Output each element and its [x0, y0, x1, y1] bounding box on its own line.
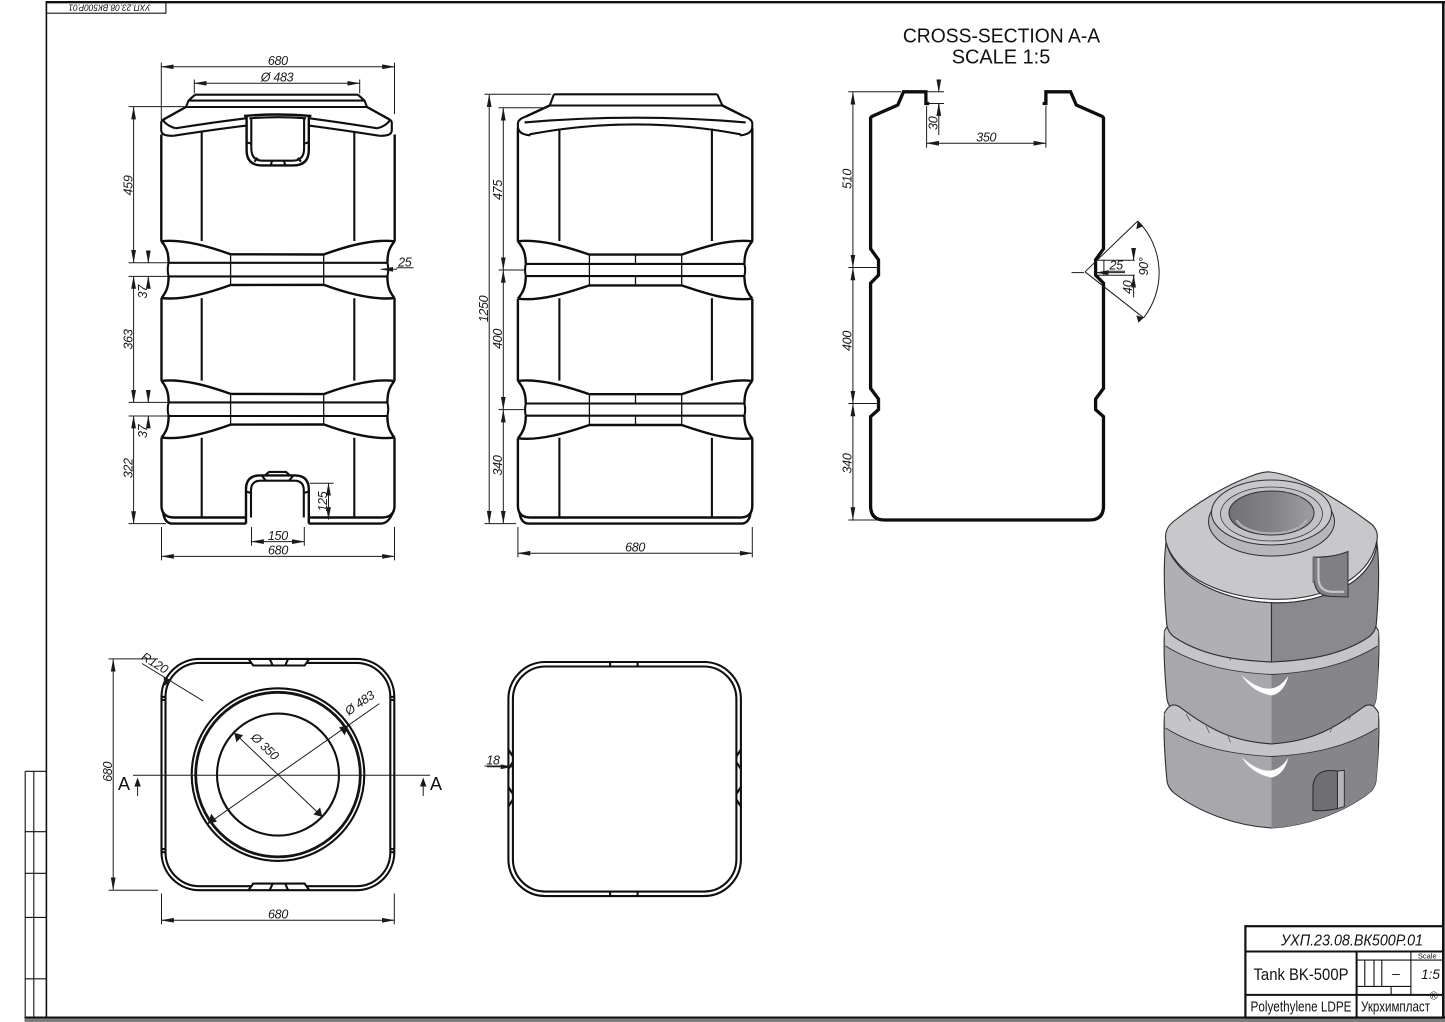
svg-text:340: 340	[491, 455, 505, 475]
svg-text:SCALE 1:5: SCALE 1:5	[952, 47, 1051, 69]
svg-text:1:5: 1:5	[1421, 967, 1440, 982]
svg-text:18: 18	[486, 754, 500, 768]
svg-text:CROSS-SECTION A-A: CROSS-SECTION A-A	[903, 26, 1101, 48]
svg-text:Polyethylene LDPE: Polyethylene LDPE	[1251, 999, 1352, 1016]
svg-text:459: 459	[121, 175, 135, 195]
svg-text:340: 340	[841, 453, 855, 473]
svg-text:30: 30	[926, 116, 940, 130]
svg-text:Укрхимпласт: Укрхимпласт	[1361, 999, 1430, 1016]
svg-text:37: 37	[136, 284, 150, 299]
svg-text:УХП.23.08.ВК500Р.01: УХП.23.08.ВК500Р.01	[1280, 933, 1423, 950]
svg-text:400: 400	[841, 331, 855, 351]
svg-text:УХП.23.08.ВК500Р.01: УХП.23.08.ВК500Р.01	[69, 3, 152, 13]
svg-text:680: 680	[268, 544, 288, 558]
svg-text:680: 680	[101, 761, 115, 781]
svg-text:25: 25	[397, 255, 412, 269]
svg-text:475: 475	[491, 180, 505, 200]
svg-text:Scale: Scale	[1418, 951, 1437, 960]
svg-text:Tank BK-500P: Tank BK-500P	[1254, 966, 1349, 984]
svg-text:510: 510	[841, 169, 855, 189]
svg-text:–: –	[1392, 965, 1400, 981]
svg-text:125: 125	[316, 491, 330, 511]
svg-text:25: 25	[1109, 259, 1124, 273]
svg-text:®: ®	[1430, 991, 1438, 1003]
svg-text:A: A	[118, 774, 130, 794]
svg-text:Ø 483: Ø 483	[260, 71, 294, 85]
svg-text:A: A	[430, 774, 442, 794]
svg-text:322: 322	[121, 458, 135, 478]
svg-text:680: 680	[268, 54, 288, 68]
svg-text:90°: 90°	[1137, 257, 1151, 275]
svg-text:363: 363	[121, 329, 135, 349]
svg-text:40: 40	[1121, 280, 1135, 294]
svg-text:350: 350	[976, 130, 996, 144]
svg-text:400: 400	[491, 329, 505, 349]
svg-text:680: 680	[268, 908, 288, 922]
svg-text:1250: 1250	[477, 295, 491, 322]
svg-text:150: 150	[268, 529, 288, 543]
svg-text:37: 37	[136, 423, 150, 438]
svg-text:680: 680	[625, 541, 645, 555]
